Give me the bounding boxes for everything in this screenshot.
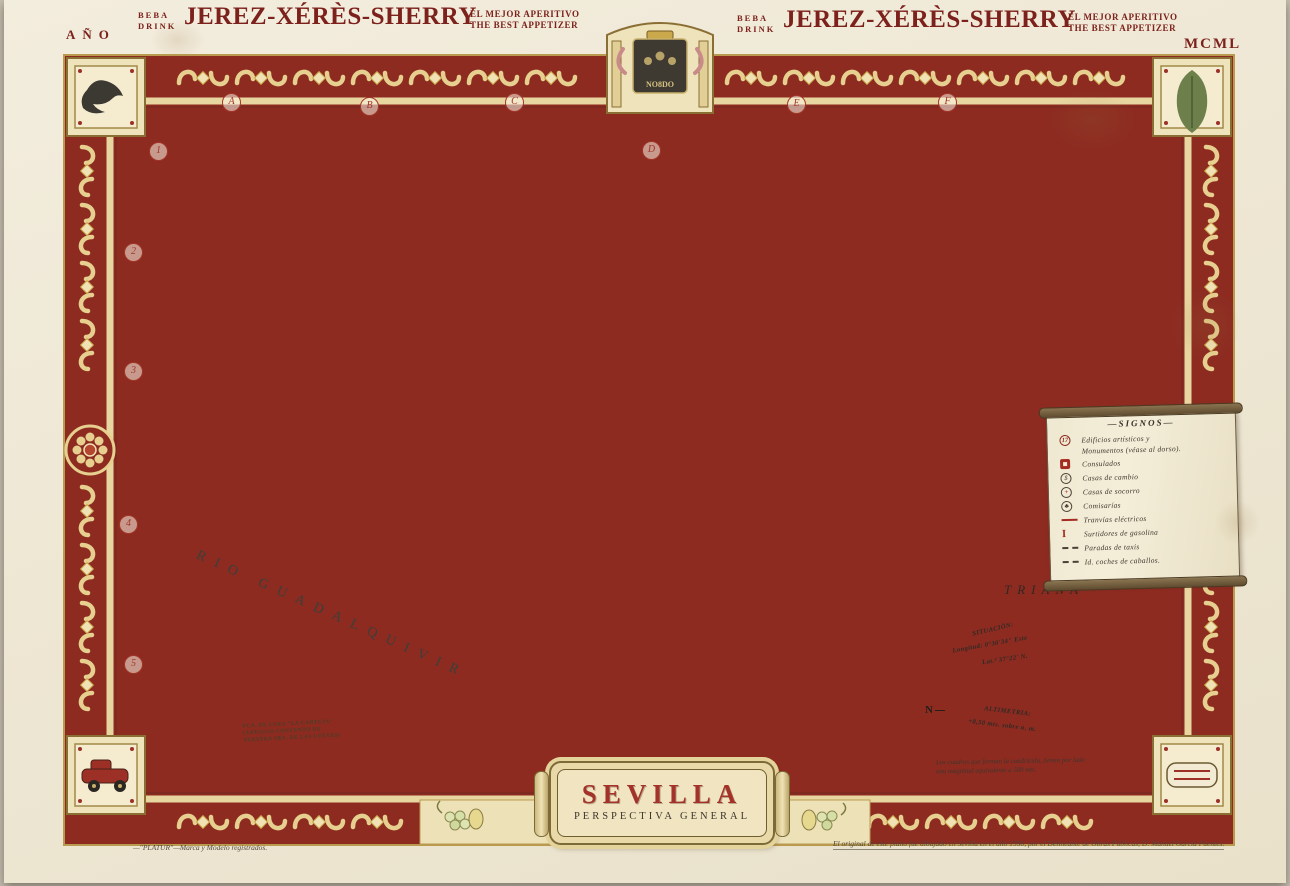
- grid-number-4: 4: [119, 515, 138, 534]
- legend-label-socorro: Casas de socorro: [1083, 486, 1140, 496]
- map-legend: —SIGNOS— 17Edificios artísticos y Monume…: [1046, 409, 1240, 586]
- trademark-note: —"PLATUR"—Marca y Modelo registrados.: [133, 843, 267, 852]
- currency-exchange-icon: $: [1060, 472, 1071, 483]
- gas-pump-icon: I: [1062, 529, 1067, 540]
- taxi-stand-icon: [1062, 547, 1078, 549]
- grid-letter-d: D: [642, 141, 661, 160]
- map-title: SEVILLA: [558, 779, 766, 810]
- left-ad-tagline1: EL MEJOR APERITIVO: [470, 9, 580, 20]
- horse-carriage-icon: [1063, 561, 1079, 563]
- grid-letter-b: B: [360, 97, 379, 116]
- legend-label-monuments-2: Monumentos (véase al dorso).: [1082, 443, 1181, 455]
- grid-letter-f: F: [938, 93, 957, 112]
- tram-line-icon: [1062, 519, 1078, 521]
- legend-label-monuments: Edificios artísticos y: [1081, 433, 1149, 444]
- grid-letter-a: A: [222, 93, 241, 112]
- latitud-value: Lat.ᵈ 37°22' N.: [982, 653, 1029, 666]
- corner-medallion-top-left: [67, 58, 145, 136]
- grid-number-1: 1: [149, 142, 168, 161]
- legend-label-caballos: Id. coches de caballos.: [1085, 555, 1161, 566]
- longitud-value: Longitud: 0°30'34" Este: [952, 634, 1028, 654]
- corner-medallion-top-right: [1153, 58, 1231, 136]
- legend-label-consulados: Consulados: [1082, 458, 1121, 468]
- grid-scale-note: Los cuadros que forman la cuadrícula, ti…: [936, 756, 1085, 777]
- corner-medallion-bottom-left: [67, 736, 145, 814]
- situacion-title: SITUACIÓN:: [972, 621, 1015, 637]
- city-coat-of-arms: NO8DO: [607, 23, 713, 113]
- legend-label-gasolina: Surtidores de gasolina: [1084, 527, 1158, 538]
- compass-annotations: SITUACIÓN: Longitud: 0°30'34" Este Lat.ᵈ…: [938, 612, 1092, 770]
- grid-number-3: 3: [124, 362, 143, 381]
- grid-letter-c: C: [505, 93, 524, 112]
- legend-label-comisarias: Comisarías: [1083, 500, 1121, 510]
- title-cartouche-inner: SEVILLA PERSPECTIVA GENERAL: [557, 769, 767, 837]
- altimetria-title: ALTIMETRIA:: [984, 705, 1032, 718]
- left-rosette-medallion: [66, 426, 114, 474]
- police-station-icon: ♣: [1061, 500, 1072, 511]
- numbered-monument-icon: 17: [1059, 434, 1070, 445]
- grid-number-5: 5: [124, 655, 143, 674]
- first-aid-icon: +: [1061, 486, 1072, 497]
- north-indicator: N: [925, 704, 945, 716]
- map-subtitle: PERSPECTIVA GENERAL: [558, 811, 766, 822]
- crest-motto: NO8DO: [646, 80, 674, 89]
- legend-title: —SIGNOS—: [1047, 416, 1235, 431]
- altimetria-value: +8,50 mts. sobre n. m.: [968, 718, 1037, 733]
- attribution-note: El original de este plano fué dibujado e…: [833, 839, 1224, 850]
- legend-label-tranvias: Tranvías eléctricos: [1083, 513, 1146, 524]
- consulate-icon: [1060, 459, 1070, 469]
- corner-medallion-bottom-right: [1153, 736, 1231, 814]
- grid-letter-e: E: [787, 95, 806, 114]
- grid-number-2: 2: [124, 243, 143, 262]
- title-cartouche: SEVILLA PERSPECTIVA GENERAL: [549, 761, 775, 845]
- framed-map-photo: AÑO BEBA DRINK JEREZ-XÉRÈS-SHERRY EL MEJ…: [0, 0, 1290, 886]
- left-ad-line1: BEBA: [138, 10, 176, 21]
- imprint-cartouche-icon: [1167, 763, 1217, 787]
- legend-label-taxis: Paradas de taxis: [1084, 542, 1139, 552]
- legend-label-cambio: Casas de cambio: [1082, 472, 1138, 482]
